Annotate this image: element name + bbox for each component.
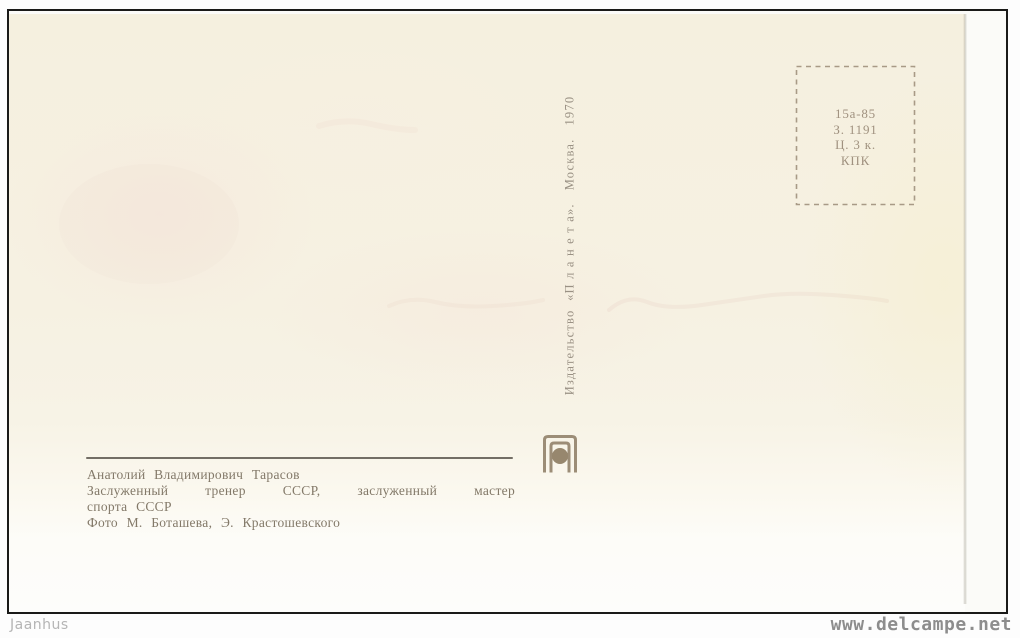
stamp-box-line: 15а-85 [795, 106, 916, 122]
card-edge-shadow [963, 14, 967, 604]
stamp-box-line: Ц. 3 к. [795, 137, 916, 153]
stamp-price-box: 15а-85 З. 1191 Ц. 3 к. КПК [795, 65, 916, 206]
postcard-surface: 15а-85 З. 1191 Ц. 3 к. КПК Издательство … [9, 14, 965, 612]
caption-name: Анатолий Владимирович Тарасов [87, 467, 517, 483]
photo-credit: Фото М. Боташева, Э. Крастошевского [87, 515, 517, 531]
publisher-imprint: Издательство «П л а н е т а». Москва. 19… [563, 81, 580, 411]
caption-block: Анатолий Владимирович Тарасов Заслуженны… [87, 467, 517, 531]
scanned-postcard-back: 15а-85 З. 1191 Ц. 3 к. КПК Издательство … [9, 11, 1006, 612]
caption-title-line1: Заслуженный тренер СССР, заслуженный мас… [87, 483, 515, 499]
caption-title-line2: спорта СССР [87, 499, 517, 515]
site-watermark: www.delcampe.net [831, 614, 1012, 635]
stamp-box-line: КПК [795, 153, 916, 169]
caption-divider [86, 457, 513, 459]
stamp-box-line: З. 1191 [795, 122, 916, 138]
publisher-logo-icon [540, 432, 580, 473]
collector-watermark: Jaanhus [10, 617, 69, 633]
